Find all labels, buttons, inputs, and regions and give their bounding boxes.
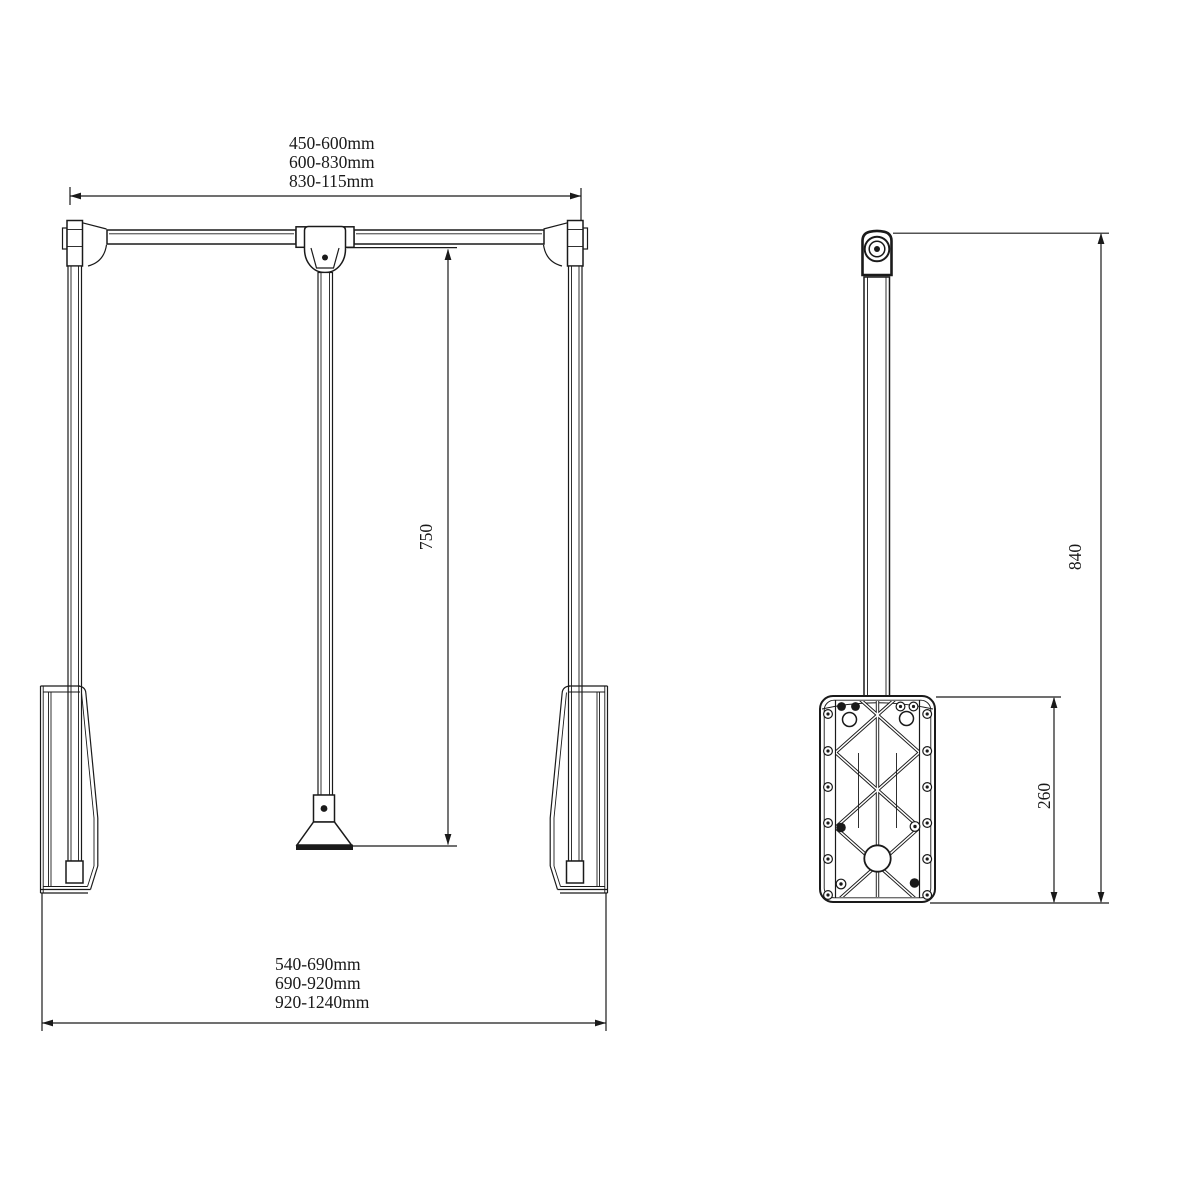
right-arm bbox=[567, 266, 584, 883]
drop-dimension-label: 750 bbox=[416, 524, 436, 551]
rail-width-label-1: 450-600mm bbox=[289, 133, 375, 153]
right-wall-bracket bbox=[544, 221, 588, 267]
drop-dimension bbox=[347, 248, 457, 846]
pull-handle bbox=[296, 795, 353, 850]
side-mount-bracket bbox=[863, 231, 892, 275]
plate-center-hole bbox=[864, 845, 890, 871]
arrow-up-icon bbox=[1098, 233, 1105, 244]
front-view: 450-600mm 600-830mm 830-115mm bbox=[41, 133, 608, 1031]
plate-height-dimension-label: 260 bbox=[1034, 783, 1054, 810]
arrow-left-icon bbox=[42, 1020, 53, 1027]
side-view: 840 260 bbox=[820, 231, 1109, 978]
arrow-down-icon bbox=[1051, 892, 1058, 903]
overall-width-label-3: 920-1240mm bbox=[275, 992, 370, 1012]
handle-screw bbox=[321, 805, 328, 812]
arrow-left-icon bbox=[70, 193, 81, 200]
side-arm bbox=[864, 277, 890, 696]
arrow-up-icon bbox=[1051, 697, 1058, 708]
center-tee-joint bbox=[305, 227, 346, 273]
overall-width-label-1: 540-690mm bbox=[275, 954, 361, 974]
mount-screw bbox=[874, 246, 880, 252]
height-dimension-label: 840 bbox=[1065, 544, 1085, 571]
rail-width-label-2: 600-830mm bbox=[289, 152, 375, 172]
left-arm bbox=[66, 266, 83, 883]
tee-screw bbox=[322, 255, 328, 261]
arrow-right-icon bbox=[595, 1020, 606, 1027]
left-arm-end-block bbox=[66, 861, 83, 883]
right-arm-end-block bbox=[567, 861, 584, 883]
arrow-down-icon bbox=[445, 834, 452, 845]
rail-width-label-3: 830-115mm bbox=[289, 171, 374, 191]
overall-width-label-2: 690-920mm bbox=[275, 973, 361, 993]
left-wall-bracket bbox=[63, 221, 107, 267]
drawing-canvas: 450-600mm 600-830mm 830-115mm bbox=[0, 0, 1200, 1200]
center-rod bbox=[318, 273, 333, 796]
arrow-down-icon bbox=[1098, 892, 1105, 903]
arrow-right-icon bbox=[570, 193, 581, 200]
handle-base bbox=[296, 845, 353, 851]
arrow-up-icon bbox=[445, 249, 452, 260]
wardrobe-lift-technical-drawing: 450-600mm 600-830mm 830-115mm bbox=[0, 0, 1200, 1200]
top-width-dimension bbox=[70, 187, 581, 221]
